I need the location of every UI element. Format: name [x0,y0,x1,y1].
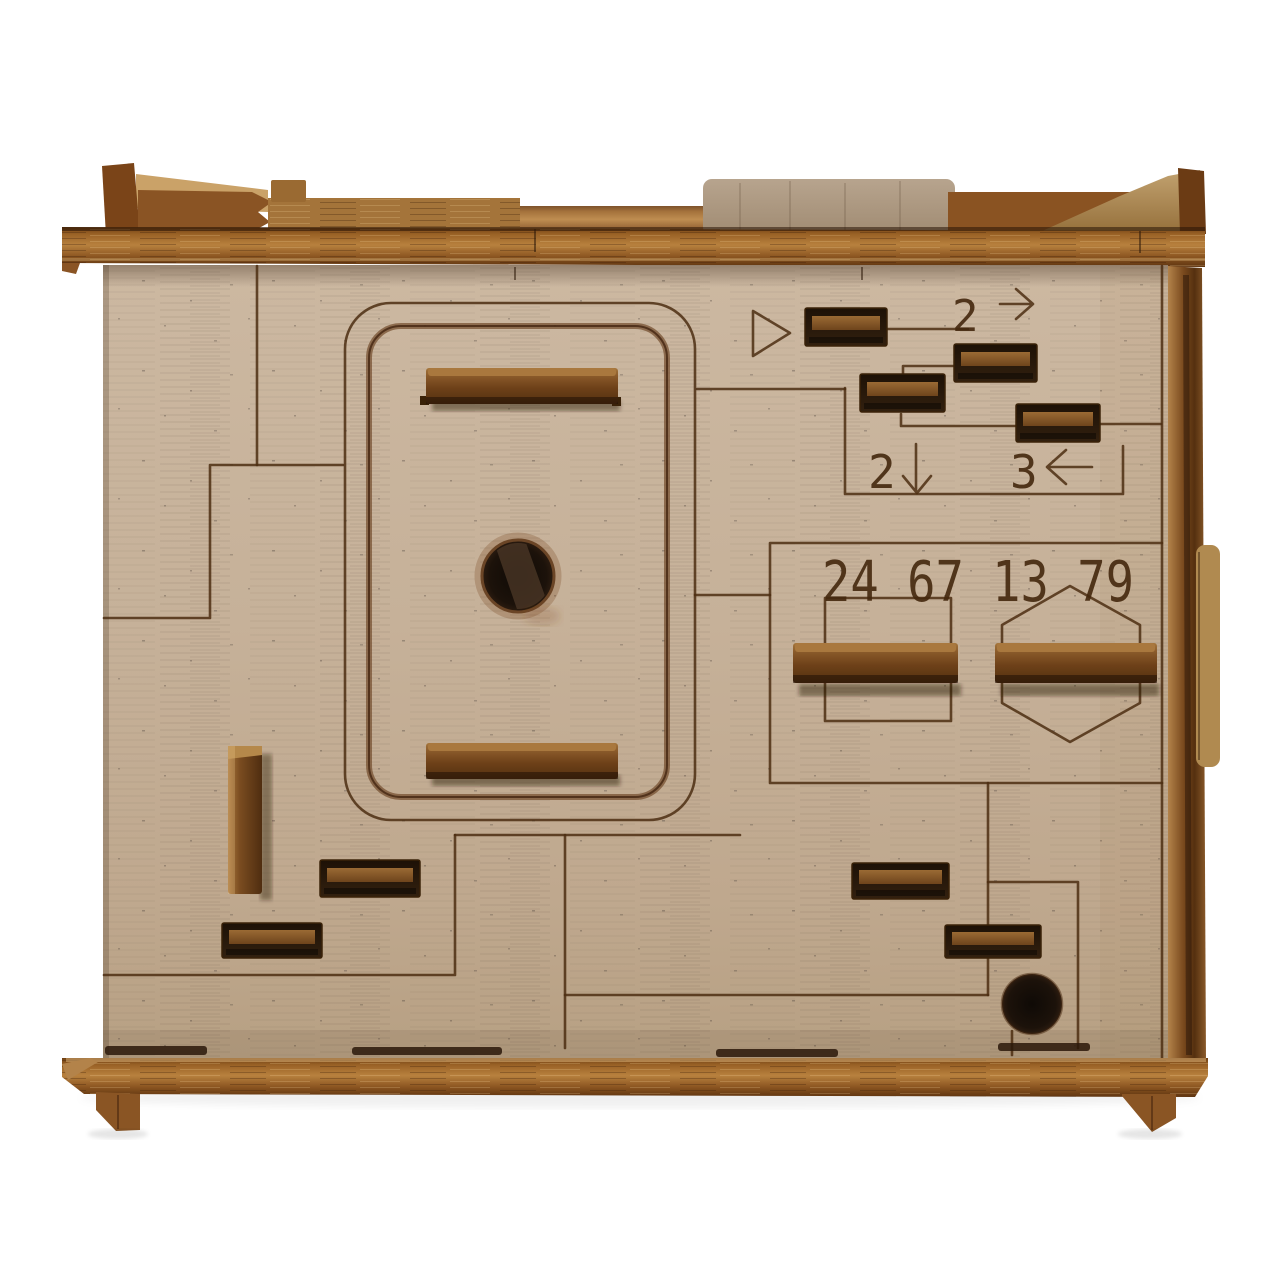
top-small-tab [271,180,306,202]
engraved-code: 24 67 13 79 [822,550,1134,615]
slider-top-bevel [428,368,616,376]
square-slider[interactable] [793,643,961,696]
slider-bottom-edge [426,397,618,404]
bottom-slit [105,1046,207,1055]
slider-bottom-edge [793,675,958,683]
top-rail-top-edge [62,227,1205,231]
slider-shadow [799,684,961,696]
under-rail-shadow [103,265,1168,287]
vertical-slider[interactable] [228,746,272,900]
panel-hole-stain [524,607,560,625]
slider-shadow [1001,684,1159,696]
base-strip-grain [62,1058,1208,1097]
slot-inner-slider[interactable] [229,930,315,944]
slider-left-highlight [228,746,235,894]
slot-inner-slider[interactable] [812,316,880,330]
puzzle-box-photo: 2 2 3 24 67 13 79 [0,0,1280,1280]
recessed-slot [805,308,887,346]
base-top-sliver [66,1058,1206,1062]
top-rail-bottom-sliver [62,258,1205,261]
recessed-slot [222,923,322,958]
slider-top-bevel [997,643,1155,652]
slot-inner-slider[interactable] [859,870,942,884]
slot-inner-slider[interactable] [952,932,1034,945]
top-rail-left-lip [62,263,80,274]
foot-shadow [88,1129,148,1139]
panel-slider-top[interactable] [420,368,621,411]
top-left-corner-post [102,163,140,236]
hint-digit-right: 2 [952,291,979,342]
bottom-slit [998,1043,1090,1051]
slot-inner-slider[interactable] [327,868,413,882]
recessed-slot [860,374,945,412]
slider-top-bevel [428,743,616,751]
hint-digit-down: 2 [868,445,896,499]
foot-shadow [1118,1129,1182,1139]
recessed-slot [954,344,1037,382]
right-foot [1122,1094,1176,1132]
bottom-slit [352,1047,502,1055]
face-left-edge-shade [103,265,109,1058]
bottom-slit [716,1049,838,1057]
right-edge-streak [1186,275,1189,1055]
slider-top-bevel [795,643,956,652]
slot-inner-slider[interactable] [1023,412,1093,426]
hexagon-slider[interactable] [995,643,1159,696]
hint-digit-left: 3 [1010,445,1038,499]
recessed-slot [1016,404,1100,442]
slot-inner-slider[interactable] [961,352,1030,366]
top-assembly [102,163,1206,236]
right-edge [1168,266,1220,1062]
top-right-corner-post [1178,168,1206,234]
slider-bottom-edge [426,772,618,779]
recessed-slot [852,863,949,899]
slot-inner-slider[interactable] [867,382,938,396]
slider-bottom-edge [995,675,1157,683]
recessed-slot [320,860,420,897]
top-mid-rail-grain [268,198,520,232]
puzzle-box-illustration: 2 2 3 24 67 13 79 [0,0,1280,1280]
recessed-slot [945,925,1041,958]
panel-slider-bottom[interactable] [426,743,620,786]
base-assembly [62,1058,1208,1139]
top-left-rail-piece [138,190,272,232]
